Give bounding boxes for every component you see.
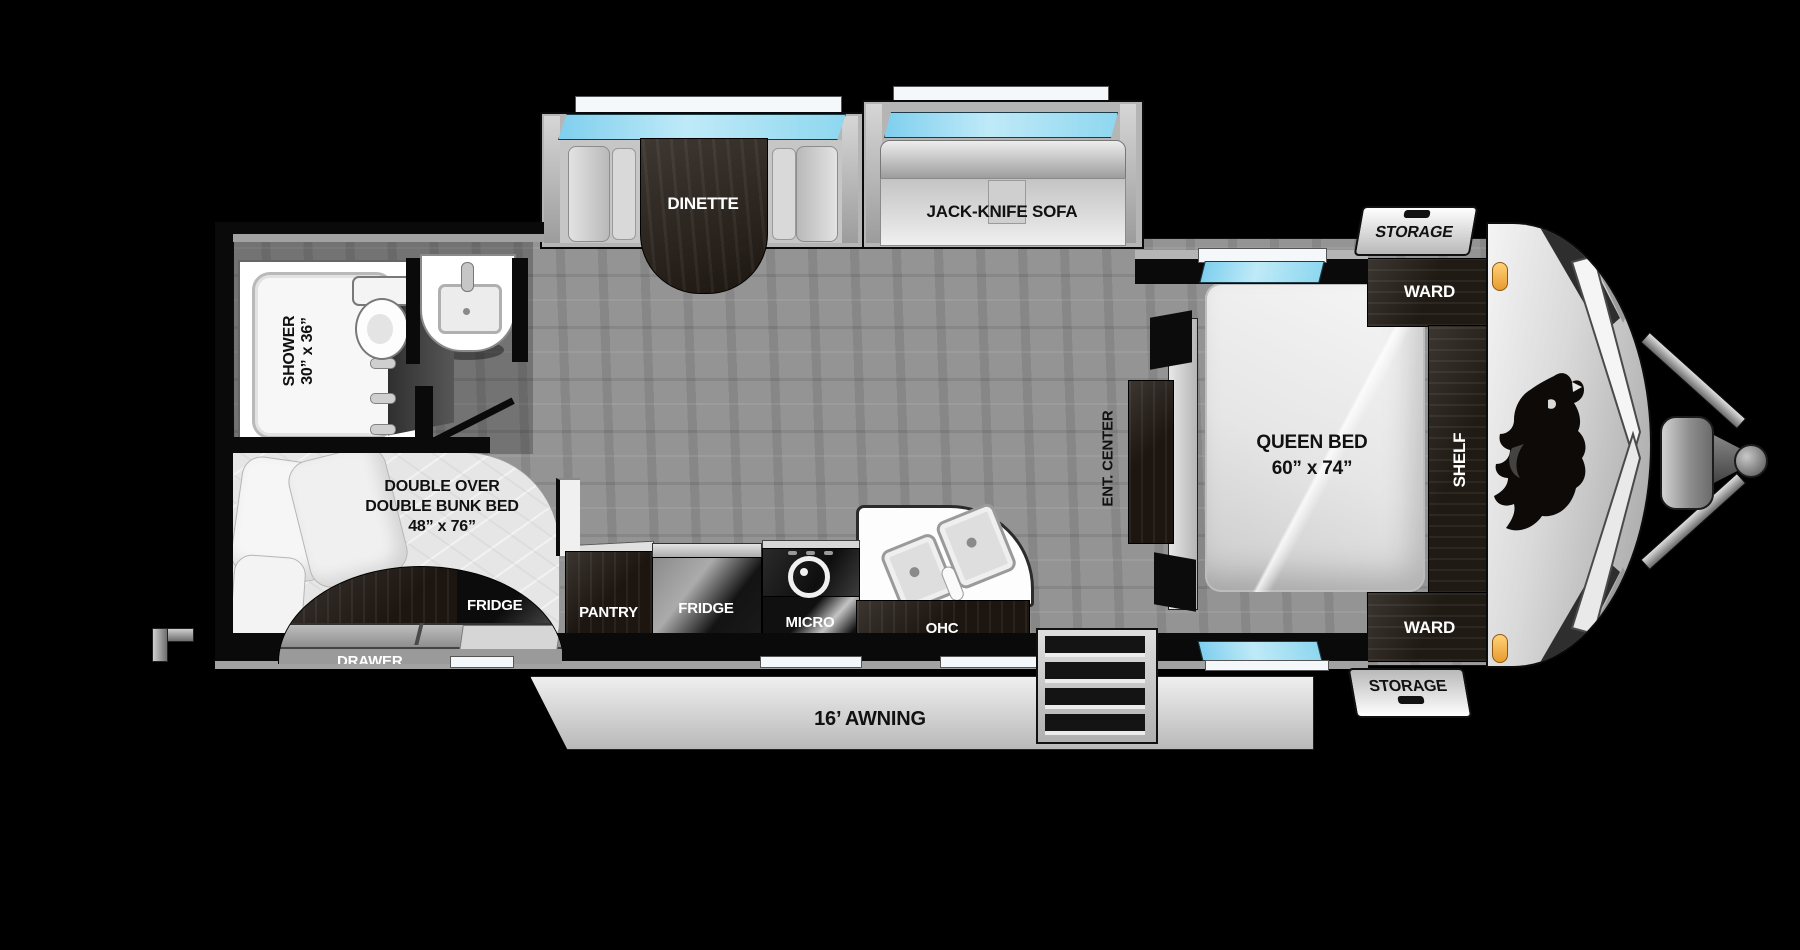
- bath-drain-icon: [463, 308, 470, 315]
- under-bunk-fridge-label: FRIDGE: [467, 597, 522, 614]
- burner-icon: [788, 556, 830, 598]
- dinette-window-icon: [558, 114, 846, 140]
- sofa-window-icon: [884, 112, 1118, 138]
- drawer-label: DRAWER: [337, 653, 402, 664]
- ent-center-tv-cabinet: [1128, 380, 1174, 544]
- under-bunk-fridge-front: [459, 625, 561, 651]
- awning-label: 16’ AWNING: [720, 708, 1020, 731]
- wall-top-left-edge: [233, 234, 556, 242]
- ohc-label: OHC: [856, 620, 1028, 637]
- storage-top-latch-icon: [1403, 210, 1430, 218]
- wardrobe-top-label: WARD: [1367, 282, 1492, 302]
- marker-light-icon-top: [1492, 262, 1508, 291]
- bedroom-window-icon: [1199, 261, 1324, 283]
- ent-center-wedge-top: [1150, 310, 1192, 369]
- dinette-table: [640, 138, 768, 294]
- bottom-window-icon-2: [760, 656, 862, 668]
- under-bunk-cutaway: FRIDGE DRAWER: [278, 566, 562, 664]
- front-cap: [1486, 222, 1652, 668]
- wall-bath-bottom: [215, 437, 490, 453]
- step-tread-3: [1045, 688, 1145, 709]
- fridge-label: FRIDGE: [652, 600, 760, 617]
- hitch-ball-icon: [1734, 444, 1768, 478]
- dinette-bench-right: [796, 146, 838, 242]
- dinette-label: DINETTE: [640, 194, 766, 214]
- bottom-window-icon-1: [450, 656, 514, 668]
- bath-faucet-icon: [461, 262, 474, 292]
- shower-label: SHOWER 30” x 36”: [281, 276, 317, 426]
- sofa-label: JACK-KNIFE SOFA: [880, 202, 1124, 222]
- storage-bottom-latch-icon: [1397, 696, 1424, 704]
- propane-tank-icon: [1660, 416, 1714, 510]
- dinette-bench-right-inner: [772, 148, 796, 240]
- bottom-window-trim-4: [1205, 660, 1329, 671]
- dinette-bench-left: [568, 146, 610, 242]
- micro-label: MICRO: [762, 614, 858, 631]
- bunk-line2: DOUBLE BUNK BED: [330, 498, 554, 516]
- dinette-bench-left-inner: [612, 148, 636, 240]
- wall-bath-divider: [406, 258, 420, 364]
- wall-bath-right: [512, 258, 528, 362]
- ent-center-wedge-bottom: [1154, 552, 1196, 611]
- shower-size: 30” x 36”: [299, 276, 317, 426]
- storage-bottom-label: STORAGE: [1350, 678, 1465, 696]
- shower-name: SHOWER: [281, 276, 299, 426]
- tongue-bar-icon-1: [1640, 332, 1746, 429]
- under-bunk-circle: FRIDGE DRAWER: [278, 566, 562, 664]
- wardrobe-bottom-label: WARD: [1367, 618, 1492, 638]
- dinette-slide-right-wall: [842, 116, 858, 243]
- queen-bed-label: QUEEN BED 60” x 74”: [1212, 432, 1412, 480]
- shelf-label: SHELF: [1450, 390, 1470, 530]
- bunk-bed-label: DOUBLE OVER DOUBLE BUNK BED 48” x 76”: [330, 478, 554, 536]
- cooktop-knob-icon-3: [824, 551, 833, 555]
- rear-bumper-post-icon: [152, 628, 168, 662]
- bunk-line1: DOUBLE OVER: [330, 478, 554, 496]
- cooktop-knob-icon-1: [788, 551, 797, 555]
- step-tread-1: [1045, 636, 1145, 657]
- marker-light-icon-bottom: [1492, 634, 1508, 663]
- pantry-label: PANTRY: [565, 604, 652, 621]
- sofa-backrest: [880, 140, 1126, 180]
- queen-bed-size: 60” x 74”: [1212, 458, 1412, 480]
- front-cap-graphics: [1488, 224, 1650, 666]
- bottom-window-icon-3: [940, 656, 1042, 668]
- entry-steps: [1036, 628, 1158, 744]
- storage-top-label: STORAGE: [1356, 224, 1471, 242]
- step-tread-2: [1045, 662, 1145, 683]
- ent-center-label: ENT. CENTER: [1100, 379, 1117, 539]
- kitchen-wall-end: [556, 478, 580, 556]
- horse-logo: [1494, 373, 1585, 530]
- floorplan-canvas: 16’ AWNING DINETTE JACK-KNIFE SOFA QUEEN…: [0, 0, 1800, 950]
- step-tread-4: [1045, 714, 1145, 735]
- bottom-window-icon-4: [1198, 641, 1323, 661]
- burner-center-icon: [800, 568, 808, 576]
- bunk-size: 48” x 76”: [330, 518, 554, 536]
- cooktop-knob-icon-2: [806, 551, 815, 555]
- under-bunk-lower: [279, 649, 562, 664]
- queen-bed-name: QUEEN BED: [1212, 432, 1412, 454]
- dinette-slide-left-wall: [544, 116, 560, 243]
- shower-hinge-icon-4: [370, 393, 396, 404]
- shower-hinge-icon-5: [370, 424, 396, 435]
- toilet-bowl-inner: [367, 314, 393, 344]
